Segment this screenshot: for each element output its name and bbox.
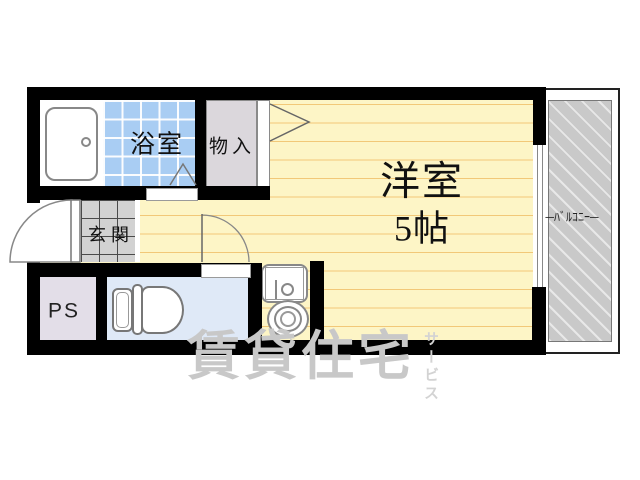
bathroom-label: 浴室: [130, 133, 184, 158]
balcony-window: [533, 145, 546, 287]
balcony-label: ─ﾊﾞﾙｺﾆｰ─: [545, 211, 598, 223]
washbasin-drain-icon: [281, 283, 294, 296]
bathroom-door-opening: [146, 188, 198, 201]
toilet-tank-inner: [116, 292, 129, 328]
western-room-label: 洋室 5帖: [380, 162, 464, 247]
washbasin-faucet-icon: [275, 280, 277, 299]
window-glass-line: [537, 145, 538, 287]
toilet-bowl-icon: [141, 286, 184, 334]
wall-top: [27, 87, 546, 100]
toilet-door-opening: [201, 264, 251, 278]
entry-door-zone: [40, 200, 81, 262]
entrance-label: 玄関: [88, 226, 134, 244]
western-room-name: 洋室: [380, 162, 464, 202]
wall-right-lower: [532, 287, 546, 342]
wall-ps-toilet: [96, 277, 107, 340]
wall-right-upper: [533, 87, 546, 145]
pipe-space-label: PS: [48, 301, 80, 322]
wall-left-upper: [27, 87, 40, 203]
entrance-step: [135, 200, 140, 262]
wall-bath-closet: [195, 100, 206, 187]
window-glass-line: [542, 145, 543, 287]
watermark-subtext: サービス: [420, 331, 441, 403]
watermark-text: 賃貸住宅: [187, 330, 415, 383]
floorplan: 浴室 物入 玄関 PS 洋室 5帖 ─ﾊﾞﾙｺﾆｰ─ 賃貸住宅 サービス: [0, 0, 640, 480]
washing-machine-center: [280, 311, 296, 327]
western-room-size: 5帖: [380, 211, 464, 247]
closet-door: [257, 100, 270, 187]
bathtub-drain-icon: [81, 137, 91, 147]
closet-label: 物入: [209, 138, 255, 157]
